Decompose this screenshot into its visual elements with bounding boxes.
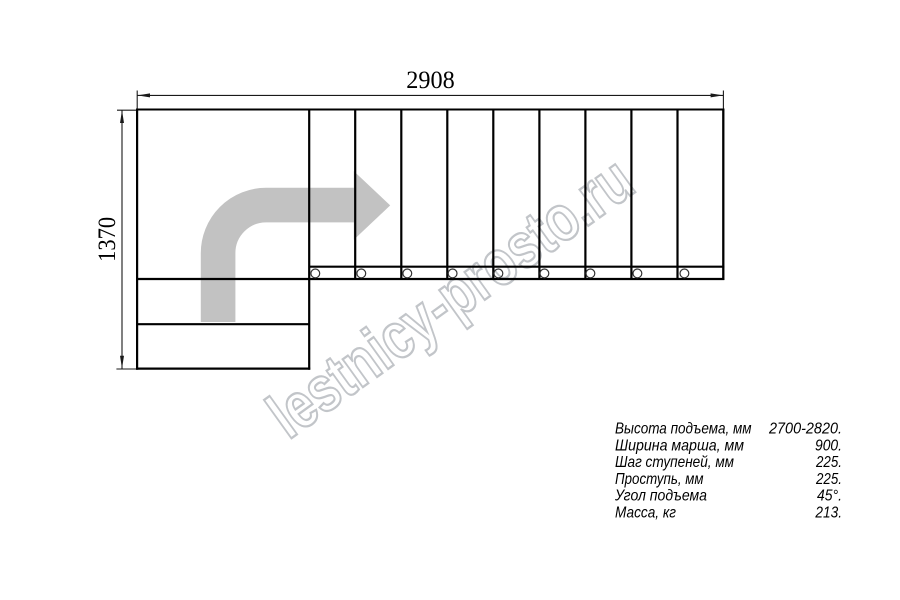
- svg-text:Ширина марша, мм: Ширина марша, мм: [615, 437, 744, 454]
- svg-text:2908: 2908: [406, 67, 455, 94]
- svg-text:1370: 1370: [94, 217, 121, 262]
- svg-text:Угол подъема: Угол подъема: [614, 488, 707, 505]
- svg-text:Масса, кг: Масса, кг: [615, 505, 676, 522]
- svg-text:Высота подъема, мм: Высота подъема, мм: [615, 421, 752, 438]
- svg-text:Проступь, мм: Проступь, мм: [615, 471, 704, 488]
- svg-text:45°.: 45°.: [817, 488, 842, 505]
- svg-text:225.: 225.: [815, 471, 842, 488]
- svg-text:Шаг ступеней, мм: Шаг ступеней, мм: [615, 454, 734, 471]
- svg-text:225.: 225.: [815, 454, 842, 471]
- svg-text:2700-2820.: 2700-2820.: [768, 421, 842, 438]
- svg-text:900.: 900.: [815, 437, 842, 454]
- svg-text:213.: 213.: [815, 505, 842, 522]
